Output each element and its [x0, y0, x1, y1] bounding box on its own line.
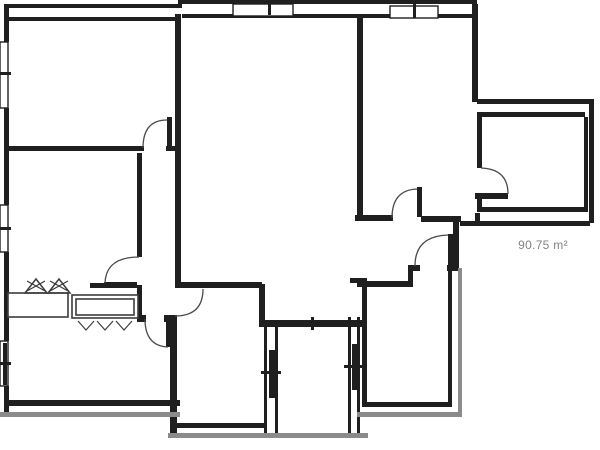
- wall-segment: [8, 146, 144, 151]
- doors-layer: [104, 117, 508, 347]
- wall-segment: [421, 216, 461, 222]
- wall-segment: [472, 4, 478, 102]
- wall-segment: [357, 14, 363, 217]
- wall-segment: [180, 0, 477, 4]
- wall-segment: [453, 222, 459, 269]
- wall-segment: [177, 423, 265, 428]
- door-leaf: [448, 234, 453, 267]
- cabinet-vmark-symbol: [78, 321, 94, 330]
- door-leaf: [417, 187, 422, 217]
- door-swing-arc: [175, 289, 203, 316]
- wall-segment: [137, 153, 142, 257]
- door-swing-arc: [145, 319, 168, 347]
- outer-wall-line: [168, 433, 368, 438]
- wall-segment: [408, 265, 413, 287]
- window-tick: [344, 365, 364, 368]
- wall-segment: [259, 320, 362, 327]
- wall-segment: [589, 102, 594, 223]
- wall-segment: [477, 112, 482, 168]
- wall-segment: [8, 4, 182, 8]
- door-leaf: [166, 320, 171, 347]
- door-leaf: [104, 282, 137, 287]
- door-swing-arc: [415, 235, 448, 266]
- wall-segment: [362, 278, 367, 407]
- door-leaf: [167, 117, 172, 149]
- window-tick: [413, 4, 416, 18]
- wall-segment: [350, 278, 367, 283]
- wall-segment: [4, 4, 9, 42]
- window-tick: [311, 317, 314, 330]
- window-tick: [268, 1, 271, 15]
- wall-segment: [4, 108, 9, 205]
- wall-segment: [8, 400, 180, 406]
- wall-segment: [264, 327, 267, 433]
- cabinet-vmark-symbol: [116, 321, 132, 330]
- window: [233, 4, 293, 16]
- windows-layer: [0, 1, 438, 398]
- wall-segment: [275, 327, 278, 433]
- window-tick: [0, 72, 11, 75]
- door-swing-arc: [392, 189, 417, 218]
- wall-segment: [8, 17, 178, 21]
- wall-segment: [584, 117, 588, 212]
- wall-segment: [355, 215, 393, 221]
- area-label: 90.75 m²: [503, 238, 583, 252]
- window-tick: [0, 227, 11, 230]
- wall-segment: [448, 268, 452, 407]
- window-tick: [261, 371, 281, 374]
- wall-segment: [477, 99, 594, 104]
- wall-segment: [175, 282, 262, 288]
- wall-segment: [413, 265, 420, 271]
- cabinet-vmark-symbol: [97, 321, 113, 330]
- kitchen-counter: [8, 293, 68, 317]
- wall-segment: [482, 112, 585, 117]
- wall-segment: [348, 317, 351, 433]
- kitchen-counter: [76, 299, 134, 315]
- door-leaf: [475, 193, 508, 199]
- door-swing-arc: [105, 257, 139, 283]
- floorplan-page: 90.75 m²: [0, 0, 600, 450]
- outer-wall-line: [458, 268, 462, 417]
- outer-wall-line: [357, 412, 460, 417]
- outer-wall-line: [0, 412, 180, 417]
- door-swing-arc: [481, 168, 508, 194]
- wall-segment: [475, 213, 480, 223]
- wall-segment: [367, 402, 452, 407]
- door-swing-arc: [143, 120, 167, 148]
- window-tick: [0, 362, 11, 365]
- walls-layer: [4, 0, 594, 433]
- wall-segment: [482, 207, 584, 212]
- floorplan-canvas: [0, 0, 600, 450]
